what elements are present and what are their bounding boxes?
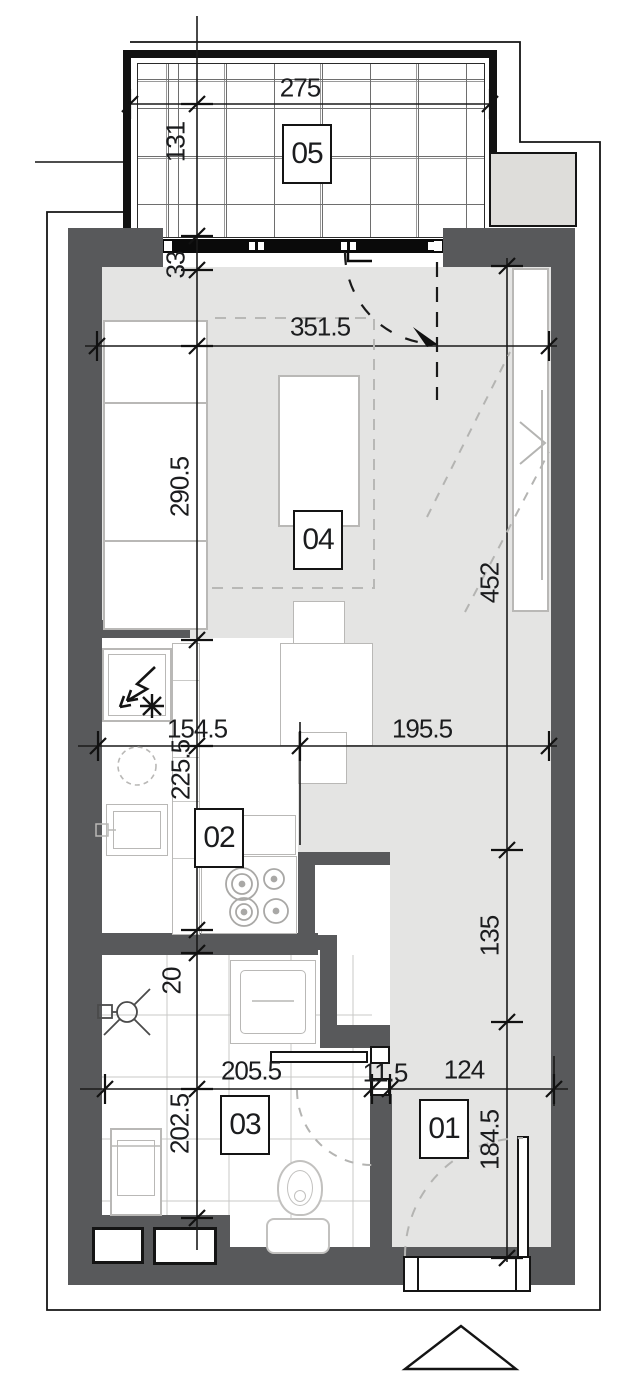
floor-plan-canvas: 0504020301 27513133351.5290.5452154.5195… <box>0 0 640 1389</box>
dimension-linework <box>0 0 640 1389</box>
room-label-04: 04 <box>293 510 343 570</box>
cooktop-burners <box>226 868 288 926</box>
room-label-02: 02 <box>194 808 244 868</box>
room-label-01: 01 <box>419 1099 469 1159</box>
snowflake-icon <box>140 694 164 718</box>
sink-circle <box>118 747 156 785</box>
dimension-label: 124 <box>444 1055 484 1086</box>
dimension-label: 275 <box>280 73 320 104</box>
dimension-label: 225.5 <box>166 740 197 800</box>
door-swing-arc <box>345 252 437 344</box>
bath-swing-arc <box>297 1090 372 1165</box>
dimension-label: 11.5 <box>363 1058 408 1089</box>
dimension-label: 452 <box>475 563 506 603</box>
dimension-label: 351.5 <box>290 312 350 343</box>
dimension-label: 131 <box>161 122 192 162</box>
north-triangle-icon <box>405 1326 516 1369</box>
dimension-label: 195.5 <box>392 714 452 745</box>
dimension-label: 184.5 <box>475 1110 506 1170</box>
shower-icon <box>98 989 150 1035</box>
dimension-label: 202.5 <box>165 1094 196 1154</box>
dimension-label: 20 <box>157 968 188 995</box>
property-boundary <box>47 42 600 1310</box>
room-label-05: 05 <box>282 124 332 184</box>
ceiling-dashed-outline <box>207 318 374 588</box>
dimension-label: 205.5 <box>221 1056 281 1087</box>
dimension-label: 135 <box>475 916 506 956</box>
dimension-label: 290.5 <box>165 457 196 517</box>
dimension-label: 33 <box>161 252 192 279</box>
room-label-03: 03 <box>220 1095 270 1155</box>
fridge-icon <box>120 667 155 707</box>
